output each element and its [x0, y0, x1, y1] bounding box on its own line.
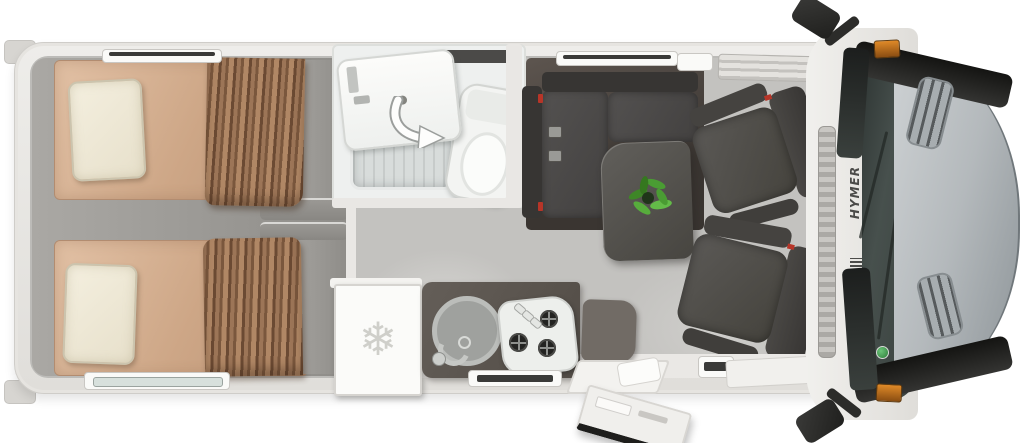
swivel-arrow-icon — [384, 96, 448, 148]
windshield-sticker — [876, 346, 889, 359]
bathroom-bottom-wall — [332, 198, 522, 208]
sink-hinge — [353, 95, 370, 105]
window-lounge-tab — [677, 53, 713, 71]
campervan-floorplan: ❄ HYMER — [0, 0, 1024, 443]
entry-door-detail-1 — [595, 396, 633, 416]
counter-extension-flap — [581, 299, 637, 363]
curtain-top — [205, 57, 306, 207]
sofa-backrest-left — [522, 86, 542, 218]
stove-burner-2 — [509, 333, 528, 352]
bathroom-right-wall — [506, 44, 522, 204]
sill-board — [725, 356, 814, 389]
toilet-bowl — [455, 128, 513, 199]
seatbelt-buckle-2 — [548, 150, 562, 162]
window-rear-bottom — [84, 372, 230, 390]
stove-burner-1 — [540, 310, 558, 328]
window-kitchen-slit-glass — [477, 375, 553, 382]
kitchen-faucet-base — [432, 352, 446, 366]
window-bed-top-glass — [109, 52, 215, 56]
fridge: ❄ — [334, 284, 422, 396]
seatbelt-buckle-1 — [548, 126, 562, 138]
stove — [496, 294, 580, 378]
hymer-logo-stripes-icon — [850, 258, 862, 267]
cab-roof-rail — [718, 54, 821, 83]
sofa-backrest-top — [542, 72, 698, 92]
cab-step-sill — [818, 126, 836, 358]
seatbelt-red-tab-1 — [538, 94, 543, 103]
swivel-seat-bottom-red-accent — [787, 243, 795, 250]
entry-door-detail-2 — [638, 410, 668, 424]
window-lounge-top — [556, 51, 678, 66]
sink-faucet — [346, 66, 359, 93]
window-rear-bottom-glass — [93, 377, 223, 387]
hymer-badge: HYMER — [844, 166, 868, 270]
marker-light-bottom — [876, 383, 903, 402]
curtain-bottom — [203, 237, 303, 377]
stove-burner-3 — [538, 339, 556, 357]
potted-plant — [624, 174, 672, 222]
snowflake-icon: ❄ — [359, 316, 398, 362]
window-door-slit-glass — [704, 362, 727, 371]
marker-light-top — [874, 39, 901, 58]
hymer-badge-text: HYMER — [848, 166, 862, 219]
window-bed-top — [102, 49, 222, 63]
seatbelt-red-tab-2 — [538, 202, 543, 211]
pillow-bottom — [62, 263, 137, 365]
pillow-top — [67, 78, 146, 182]
window-kitchen-slit — [468, 370, 562, 387]
window-lounge-top-glass — [563, 55, 671, 59]
